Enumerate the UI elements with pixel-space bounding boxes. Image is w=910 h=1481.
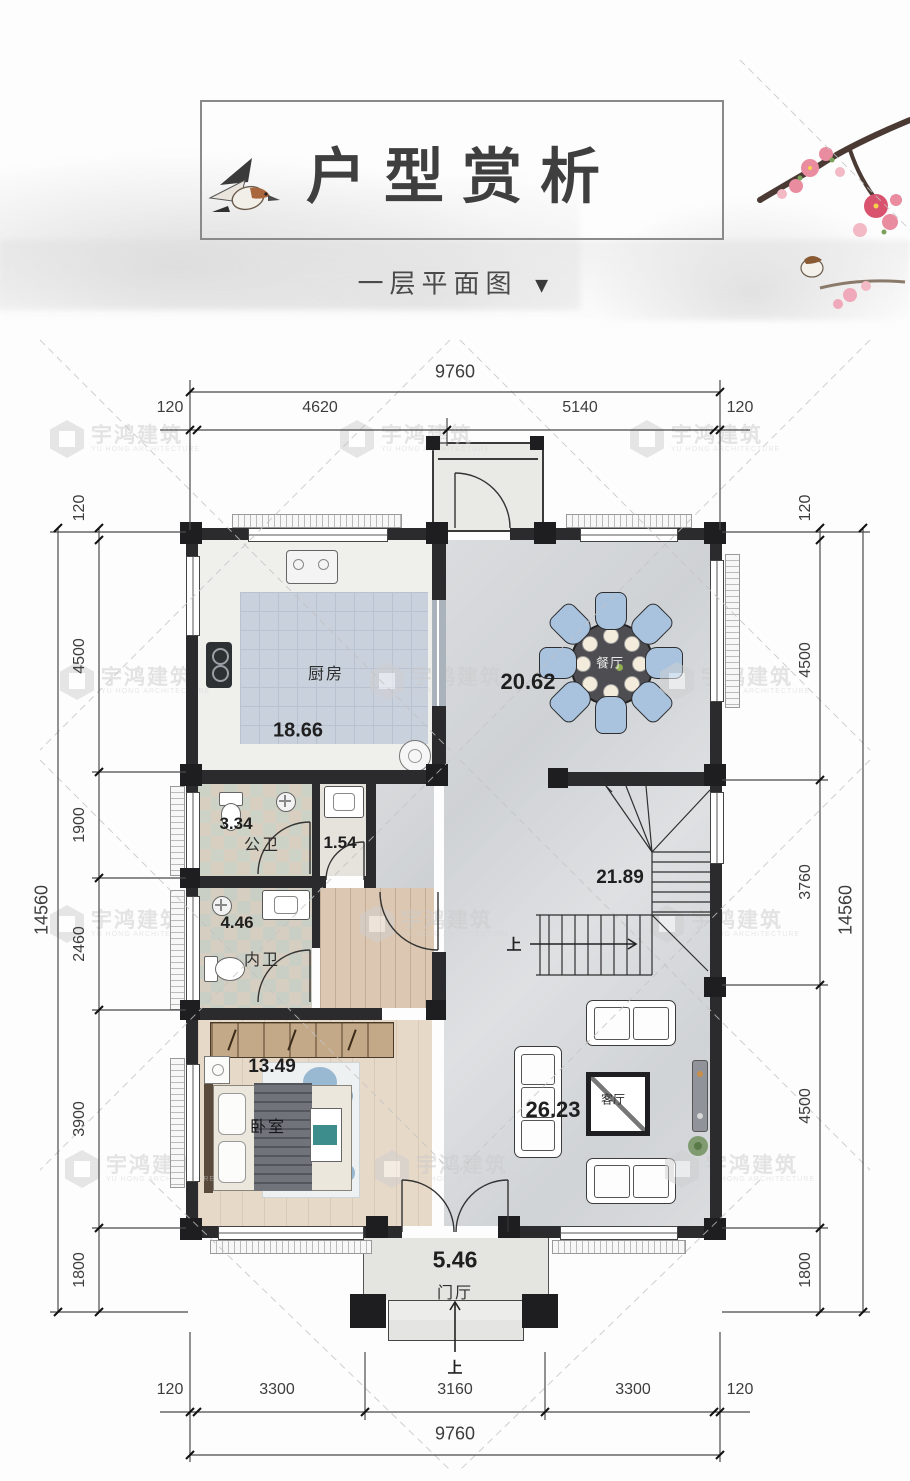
entry-up-label: 上 <box>447 1357 462 1378</box>
dim-bottom-seg: 120 <box>157 1381 184 1399</box>
window-sill <box>725 554 740 708</box>
dim-top-seg: 4620 <box>302 399 338 417</box>
window <box>186 792 200 870</box>
porch-column <box>522 1294 558 1328</box>
watermark: 宇鸿建筑YU HONG ARCHITECTURE <box>340 420 490 458</box>
room-area-stairs: 21.89 <box>596 867 644 889</box>
plum-blossom-branch <box>700 90 910 320</box>
watermark: 宇鸿建筑YU HONG ARCHITECTURE <box>650 905 800 943</box>
dim-right-overall: 14560 <box>836 885 857 935</box>
sofa-two-seat <box>586 1158 676 1204</box>
window-sill <box>170 890 185 1010</box>
kitchen-sliding-door <box>432 600 446 706</box>
watermark-logo-icon <box>370 662 404 700</box>
window <box>186 1064 200 1182</box>
window <box>710 560 724 702</box>
dim-right-seg: 4500 <box>797 1088 815 1124</box>
stairs-up-label: 上 <box>506 934 521 955</box>
watermark: 宇鸿建筑YU HONG ARCHITECTURE <box>360 905 510 943</box>
watermark-logo-icon <box>340 420 374 458</box>
room-label-kitchen: 厨房 <box>308 660 344 684</box>
down-triangle-icon: ▼ <box>531 273 553 298</box>
window <box>186 556 200 636</box>
window-sill <box>552 1240 686 1254</box>
dim-right-seg: 1800 <box>797 1252 815 1288</box>
porch-column <box>350 1294 386 1328</box>
window-sill <box>566 514 692 528</box>
room-area-master-bath: 4.46 <box>220 913 253 933</box>
dim-right-seg: 4500 <box>797 642 815 678</box>
toilet <box>204 956 244 980</box>
watermark: 宇鸿建筑YU HONG ARCHITECTURE <box>665 1150 815 1188</box>
watermark-logo-icon <box>665 1150 699 1188</box>
dim-top-seg: 5140 <box>562 399 598 417</box>
window <box>218 1226 364 1240</box>
pillow <box>218 1141 246 1183</box>
dim-left-seg: 4500 <box>71 638 89 674</box>
pillow <box>218 1093 246 1135</box>
vanity-sink <box>262 890 310 920</box>
room-label-bedroom: 卧室 <box>250 1113 286 1137</box>
watermark-logo-icon <box>650 905 684 943</box>
nightstand <box>204 1056 230 1084</box>
dim-top-overall: 9760 <box>435 362 475 383</box>
blanket <box>254 1083 312 1191</box>
room-area-wash-nook: 1.54 <box>323 833 356 853</box>
window-sill <box>170 1058 185 1188</box>
page-subtitle: 一层平面图 ▼ <box>357 264 552 301</box>
dim-left-seg: 1800 <box>71 1252 89 1288</box>
bedroom-bench <box>310 1108 342 1162</box>
dim-left-seg: 120 <box>71 495 89 522</box>
dim-left-seg: 1900 <box>71 807 89 843</box>
room-area-kitchen: 18.66 <box>273 720 323 743</box>
entry-step-1 <box>388 1300 524 1322</box>
shower-head-icon <box>276 792 296 812</box>
window <box>710 792 724 864</box>
tv-console <box>692 1060 708 1132</box>
sofa-two-seat <box>586 1000 676 1046</box>
watermark-logo-icon <box>375 1150 409 1188</box>
dim-left-overall: 14560 <box>32 885 53 935</box>
room-label-living: 客厅 <box>601 1091 625 1108</box>
wash-basin <box>324 786 364 818</box>
small-bird-icon <box>801 256 823 277</box>
dim-left-seg: 3900 <box>71 1101 89 1137</box>
room-label-public-bath: 公卫 <box>244 831 280 855</box>
watermark-logo-icon <box>65 1150 99 1188</box>
window <box>186 896 200 1004</box>
room-label-foyer: 门厅 <box>437 1279 473 1303</box>
dim-top-seg: 120 <box>157 399 184 417</box>
dim-bottom-seg: 3300 <box>615 1381 651 1399</box>
room-area-bedroom: 13.49 <box>248 1056 296 1078</box>
window <box>560 1226 678 1240</box>
room-area-dining: 20.62 <box>500 669 555 695</box>
watermark: 宇鸿建筑YU HONG ARCHITECTURE <box>375 1150 525 1188</box>
watermark-logo-icon <box>630 420 664 458</box>
bird-icon <box>190 140 300 250</box>
subtitle-text: 一层平面图 <box>357 269 517 299</box>
watermark-logo-icon <box>660 662 694 700</box>
dim-right-seg: 120 <box>797 495 815 522</box>
dim-bottom-seg: 3160 <box>437 1381 473 1399</box>
page-title: 户型赏析 <box>306 129 618 216</box>
dim-left-seg: 2460 <box>71 926 89 962</box>
window <box>248 528 388 542</box>
dim-bottom-overall: 9760 <box>435 1424 475 1445</box>
watermark-logo-icon <box>360 905 394 943</box>
dim-right-seg: 3760 <box>797 864 815 900</box>
watermark: 宇鸿建筑YU HONG ARCHITECTURE <box>630 420 780 458</box>
window <box>580 528 678 542</box>
hall-marble-strip <box>374 784 434 888</box>
watermark-logo-icon <box>50 420 84 458</box>
window-sill <box>210 1240 372 1254</box>
kitchen-sink <box>286 550 338 584</box>
watermark: 宇鸿建筑YU HONG ARCHITECTURE <box>50 420 200 458</box>
room-label-dining: 餐厅 <box>596 653 624 672</box>
room-area-foyer: 5.46 <box>433 1247 478 1274</box>
floor-plan-sheet: 户型赏析 一层平面图 ▼ 宇鸿建筑Y <box>0 0 910 1481</box>
entry-step-2 <box>388 1320 524 1341</box>
window-sill <box>170 786 185 876</box>
dim-bottom-seg: 3300 <box>259 1381 295 1399</box>
room-label-master-bath: 内卫 <box>244 946 280 970</box>
room-area-living: 26.23 <box>525 1097 580 1123</box>
dim-top-seg: 120 <box>727 399 754 417</box>
wardrobe <box>210 1022 394 1058</box>
window-sill <box>232 514 402 528</box>
dim-bottom-seg: 120 <box>727 1381 754 1399</box>
